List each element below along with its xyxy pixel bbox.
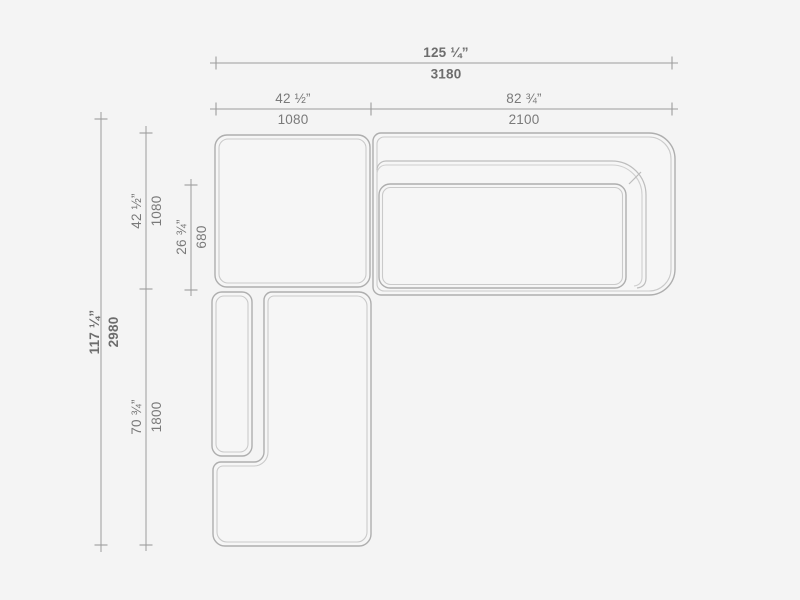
corner-module (215, 135, 370, 287)
dim-sofa-width-inches: 82 ¾” (506, 91, 542, 106)
dim-depth-segments: 42 ½” 1080 70 ¾” 1800 (129, 126, 164, 551)
dim-overall-width-inches: 125 ¼” (423, 45, 468, 60)
technical-drawing-canvas: 125 ¼” 3180 42 ½” 1080 82 ¾” 2100 117 ¼”… (0, 0, 800, 600)
dim-seat-depth-inches: 26 ¾” (174, 219, 189, 255)
dim-seat-depth-mm: 680 (194, 225, 209, 248)
dim-chaise-length-inches: 70 ¾” (129, 399, 144, 435)
dim-overall-depth-mm: 2980 (106, 317, 121, 348)
dim-chaise-length-mm: 1800 (149, 402, 164, 433)
dim-overall-depth-inches: 117 ¼” (87, 310, 102, 355)
corner-module-outline (215, 135, 370, 287)
dim-width-segments: 42 ½” 1080 82 ¾” 2100 (210, 91, 678, 127)
dim-overall-width-mm: 3180 (431, 67, 462, 82)
sofa-dimension-drawing: 125 ¼” 3180 42 ½” 1080 82 ¾” 2100 117 ¼”… (0, 0, 800, 600)
dim-overall-width: 125 ¼” 3180 (210, 45, 678, 82)
dim-corner-width-inches: 42 ½” (275, 91, 311, 106)
chaise-armrest-outline (212, 292, 252, 456)
dim-corner-width-mm: 1080 (278, 112, 309, 127)
sofa-module (373, 133, 675, 295)
dim-sofa-width-mm: 2100 (509, 112, 540, 127)
dim-corner-depth-inches: 42 ½” (129, 193, 144, 229)
dim-seat-depth: 26 ¾” 680 (174, 179, 209, 296)
chaise-module (212, 292, 371, 546)
dim-overall-depth: 117 ¼” 2980 (87, 112, 121, 552)
dim-corner-depth-mm: 1080 (149, 196, 164, 227)
sofa-seat-cushion (379, 184, 626, 288)
